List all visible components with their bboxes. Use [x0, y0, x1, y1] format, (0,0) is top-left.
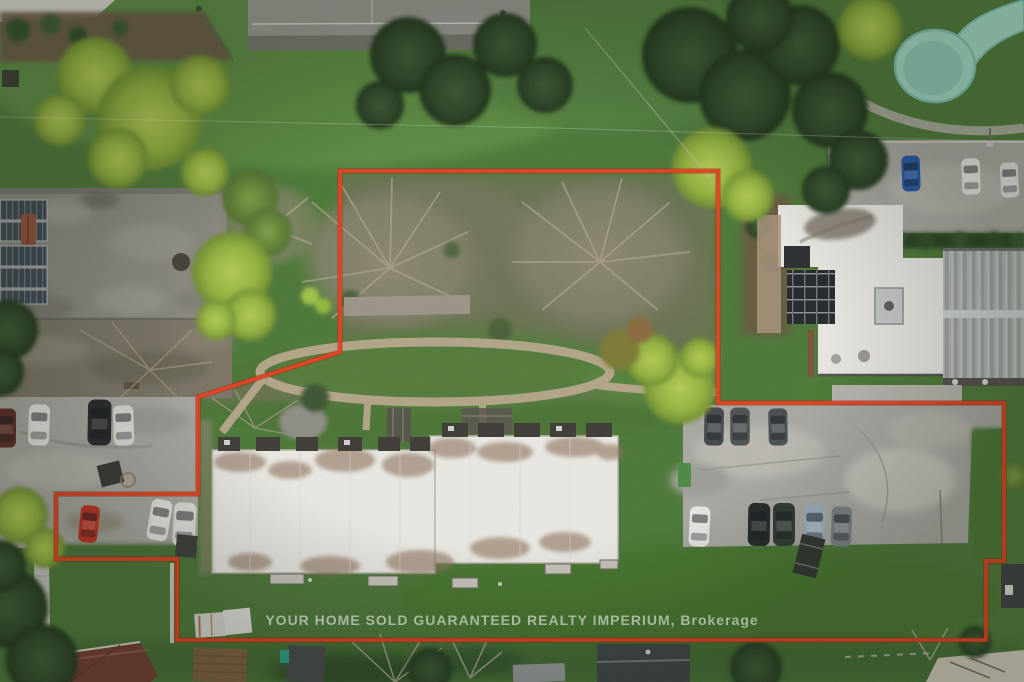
aerial-photo-canvas [0, 0, 1024, 682]
brokerage-watermark: YOUR HOME SOLD GUARANTEED REALTY IMPERIU… [0, 612, 1024, 628]
aerial-photograph: YOUR HOME SOLD GUARANTEED REALTY IMPERIU… [0, 0, 1024, 682]
vignette [0, 0, 1024, 682]
